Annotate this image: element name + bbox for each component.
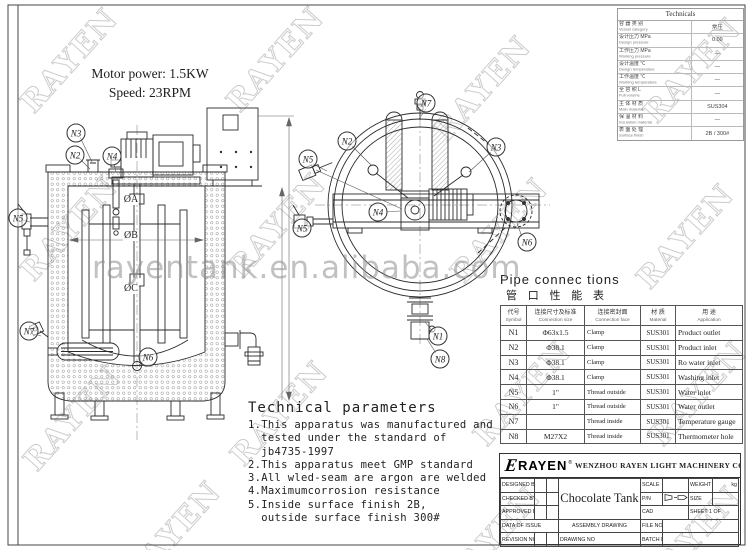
- pipe-cell: N6: [501, 399, 527, 414]
- approved-by-label: APPROVED BY: [501, 506, 535, 520]
- pipe-row: N61"Thread outsideSUS301Water outlet: [501, 399, 743, 414]
- file-no-label: FILE NO: [641, 519, 663, 533]
- technical-parameter-line: outside surface finish 300#: [248, 512, 498, 525]
- technical-parameter-line: 4.Maximumcorrosion resistance: [248, 485, 498, 498]
- pipe-cell: 1": [527, 399, 585, 414]
- pipe-connections-table: 代号Symbol连接尺寸及标准Connection size连接密封面Conne…: [500, 305, 743, 444]
- pipe-cell: Product inlet: [676, 340, 743, 355]
- pipe-cell: SUS301: [641, 355, 676, 370]
- technicals-row: 工作压力 MPaWorking pressure—: [618, 48, 743, 61]
- batch-no-value-cell[interactable]: [663, 533, 739, 547]
- pipe-cell: Temperature gauge: [676, 414, 743, 429]
- pipe-cell: N5: [501, 385, 527, 400]
- pipe-cell: SUS301: [641, 340, 676, 355]
- pipe-cell: 1": [527, 385, 585, 400]
- pipe-cell: Ro water inlet: [676, 355, 743, 370]
- pipe-cell: Washing inlet: [676, 370, 743, 385]
- technical-parameter-line: jb4735-1997: [248, 446, 498, 459]
- pipe-connections-title: Pipe connec tions: [500, 272, 744, 287]
- technicals-row: 设计温度 ℃Design temperature—: [618, 61, 743, 74]
- size-label: SIZE: [689, 492, 713, 506]
- pipe-column-header: 材 质Material: [641, 306, 676, 326]
- pipe-connections-section: Pipe connec tions 管 口 性 能 表 代号Symbol连接尺寸…: [500, 272, 744, 444]
- pipe-row: N51"Thread outsideSUS301Water inlet: [501, 385, 743, 400]
- motor-note: Motor power: 1.5KW Speed: 23RPM: [80, 64, 220, 102]
- revision-cell-2[interactable]: [547, 533, 559, 547]
- pipe-cell: Product outlet: [676, 326, 743, 341]
- pipe-cell: Φ38.1: [527, 355, 585, 370]
- pipe-cell: Water outlet: [676, 399, 743, 414]
- pipe-table-header: 代号Symbol连接尺寸及标准Connection size连接密封面Conne…: [501, 306, 743, 326]
- technicals-row: 保 温 材 料Insulation material—: [618, 114, 743, 127]
- cad-label: CAD: [641, 506, 689, 520]
- pipe-cell: N4: [501, 370, 527, 385]
- technicals-row: 全 容 积 LFull volume—: [618, 87, 743, 100]
- pipe-cell: N3: [501, 355, 527, 370]
- pipe-cell: [527, 414, 585, 429]
- technicals-row: 主 体 材 质Main materialSUS304: [618, 101, 743, 114]
- technicals-row: 表 面 处 理Surface finish2B / 300#: [618, 127, 743, 139]
- pn-label: P/N: [641, 492, 663, 506]
- designed-by-label: DESIGNED BY: [501, 479, 535, 493]
- pipe-cell: SUS301: [641, 385, 676, 400]
- pipe-table-body: N1Φ63x1.5ClampSUS301Product outletN2Φ38.…: [501, 326, 743, 444]
- pipe-row: N8M27X2Thread insideSUS301Thermometer ho…: [501, 429, 743, 444]
- technical-parameters-title: Technical parameters: [248, 400, 498, 416]
- pipe-cell: M27X2: [527, 429, 585, 444]
- title-block-grid: DESIGNED BY Chocolate Tank SCALE WEIGHT …: [500, 478, 739, 547]
- batch-no-label: BATCH NO: [641, 533, 663, 547]
- third-angle-projection-icon: [664, 493, 688, 502]
- kg-label: kg: [713, 479, 739, 493]
- technicals-table: Technicals 容 器 类 别Vessel category常压设计压力 …: [617, 8, 744, 141]
- registered-mark: ®: [568, 460, 572, 466]
- technical-parameter-line: tested under the standard of: [248, 432, 498, 445]
- pipe-cell: SUS301: [641, 370, 676, 385]
- pipe-cell: Thread inside: [585, 414, 641, 429]
- technical-parameters-lines: 1.This apparatus was manufactured and te…: [248, 419, 498, 525]
- pipe-cell: Clamp: [585, 355, 641, 370]
- technical-parameter-line: 1.This apparatus was manufactured and: [248, 419, 498, 432]
- rayen-logo-text: RAYEN: [518, 458, 567, 473]
- pipe-cell: Φ38.1: [527, 370, 585, 385]
- designed-by-cell-1[interactable]: [535, 479, 547, 493]
- pipe-cell: Clamp: [585, 370, 641, 385]
- pipe-cell: Thread outside: [585, 385, 641, 400]
- title-block-logo-band: E RAYEN ® WENZHOU RAYEN LIGHT MACHINERY …: [500, 454, 740, 478]
- assembly-drawing-label: ASSEMBLY DRAWING: [559, 519, 641, 533]
- pipe-cell: Water inlet: [676, 385, 743, 400]
- scale-value-cell[interactable]: [663, 479, 689, 493]
- pipe-cell: Thermometer hole: [676, 429, 743, 444]
- revision-cell-1[interactable]: [535, 533, 547, 547]
- size-value-cell[interactable]: [713, 492, 739, 506]
- approved-by-cell-2[interactable]: [547, 506, 559, 520]
- rayen-logo-icon: E: [504, 455, 519, 476]
- pipe-cell: N2: [501, 340, 527, 355]
- pipe-cell: Clamp: [585, 326, 641, 341]
- date-of-issue-label: DATA OF ISSUE: [501, 519, 559, 533]
- title-block: E RAYEN ® WENZHOU RAYEN LIGHT MACHINERY …: [499, 453, 741, 545]
- technicals-row: 容 器 类 别Vessel category常压: [618, 21, 743, 34]
- motor-speed-text: Speed: 23RPM: [80, 83, 220, 102]
- motor-power-text: Motor power: 1.5KW: [80, 64, 220, 83]
- pipe-cell: N1: [501, 326, 527, 341]
- pipe-column-header: 代号Symbol: [501, 306, 527, 326]
- pipe-column-header: 连接密封面Connection face: [585, 306, 641, 326]
- technical-parameter-line: 5.Inside surface finish 2B,: [248, 499, 498, 512]
- scale-label: SCALE: [641, 479, 663, 493]
- technicals-title: Technicals: [618, 9, 743, 21]
- product-title: Chocolate Tank: [559, 479, 641, 520]
- pipe-column-header: 用 途Application: [676, 306, 743, 326]
- company-name: WENZHOU RAYEN LIGHT MACHINERY CO., LTD: [575, 461, 740, 470]
- panel-indicator-dots: [220, 151, 252, 168]
- weight-label: WEIGHT: [689, 479, 713, 493]
- projection-symbol-cell: [663, 492, 689, 506]
- pipe-cell: Thread outside: [585, 399, 641, 414]
- checked-by-cell-1[interactable]: [535, 492, 547, 506]
- technicals-rows: 容 器 类 别Vessel category常压设计压力 MPaDesign p…: [618, 21, 743, 140]
- technicals-row: 工作温度 ℃Working temperature—: [618, 74, 743, 87]
- pipe-column-header: 连接尺寸及标准Connection size: [527, 306, 585, 326]
- pipe-cell: SUS301: [641, 326, 676, 341]
- technicals-row: 设计压力 MPaDesign pressure0.09: [618, 34, 743, 47]
- drawing-sheet: RAYENRAYENRAYENRAYENRAYENRAYENRAYENRAYEN…: [0, 0, 750, 550]
- front-view: [18, 108, 263, 440]
- designed-by-cell-2[interactable]: [547, 479, 559, 493]
- pipe-cell: Φ38.1: [527, 340, 585, 355]
- revision-no-label: REVISION NO: [501, 533, 535, 547]
- pipe-cell: N7: [501, 414, 527, 429]
- checked-by-label: CHECKED BY: [501, 492, 535, 506]
- pipe-row: N4Φ38.1ClampSUS301Washing inlet: [501, 370, 743, 385]
- pipe-row: N2Φ38.1ClampSUS301Product inlet: [501, 340, 743, 355]
- pipe-cell: SUS301: [641, 429, 676, 444]
- sheet-label: SHEET 1 OF: [689, 506, 739, 520]
- pipe-cell: N8: [501, 429, 527, 444]
- technical-parameters: Technical parameters 1.This apparatus wa…: [248, 400, 498, 525]
- file-no-value-cell[interactable]: [663, 519, 739, 533]
- checked-by-cell-2[interactable]: [547, 492, 559, 506]
- front-leader-lines: [23, 137, 144, 365]
- pipe-row: N1Φ63x1.5ClampSUS301Product outlet: [501, 326, 743, 341]
- pipe-cell: Clamp: [585, 340, 641, 355]
- technical-parameter-line: 3.All wled-seam are argon are welded: [248, 472, 498, 485]
- approved-by-cell-1[interactable]: [535, 506, 547, 520]
- pipe-cell: SUS301: [641, 399, 676, 414]
- drawing-no-label: DRAWING NO: [559, 533, 641, 547]
- pipe-connections-title-cn: 管 口 性 能 表: [506, 287, 744, 303]
- pipe-cell: Thread inside: [585, 429, 641, 444]
- pipe-cell: SUS301: [641, 414, 676, 429]
- flange-bolts: [506, 201, 526, 221]
- pipe-row: N3Φ38.1ClampSUS301Ro water inlet: [501, 355, 743, 370]
- pipe-row: N7Thread insideSUS301Temperature gauge: [501, 414, 743, 429]
- pipe-cell: Φ63x1.5: [527, 326, 585, 341]
- technical-parameter-line: 2.This apparatus meet GMP standard: [248, 459, 498, 472]
